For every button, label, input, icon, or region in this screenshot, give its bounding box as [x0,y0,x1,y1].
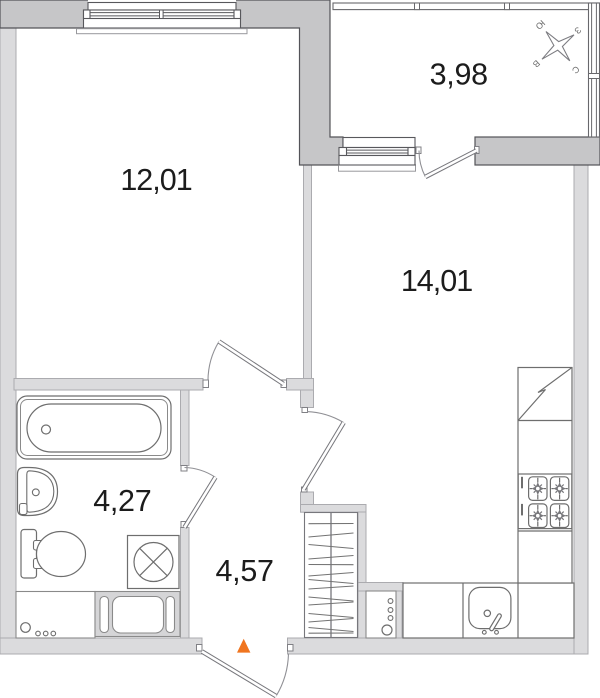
svg-text:12,01: 12,01 [120,163,191,197]
svg-text:4,57: 4,57 [216,554,274,588]
svg-text:3,98: 3,98 [430,58,488,92]
svg-text:4,27: 4,27 [93,484,151,518]
svg-text:14,01: 14,01 [401,264,472,298]
